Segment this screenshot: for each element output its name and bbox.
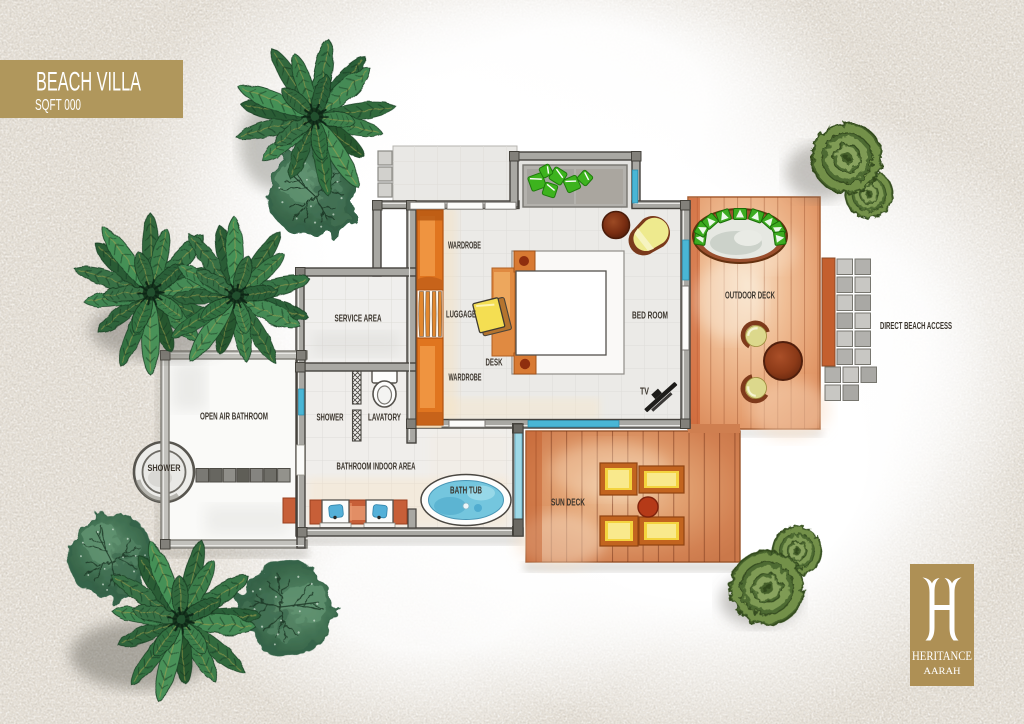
svg-text:OUTDOOR DECK: OUTDOOR DECK [725,290,775,302]
svg-text:SQFT 000: SQFT 000 [35,97,81,114]
svg-text:BED ROOM: BED ROOM [632,310,668,322]
svg-text:SUN DECK: SUN DECK [551,497,585,509]
svg-text:BATHROOM INDOOR AREA: BATHROOM INDOOR AREA [337,461,416,473]
svg-text:WARDROBE: WARDROBE [449,372,482,384]
svg-text:LUGGAGE: LUGGAGE [446,309,476,321]
svg-text:TV: TV [640,386,649,398]
svg-text:HERITANCE: HERITANCE [912,649,972,663]
svg-text:BEACH VILLA: BEACH VILLA [36,67,141,97]
svg-text:SERVICE AREA: SERVICE AREA [335,313,382,325]
svg-text:OPEN AIR BATHROOM: OPEN AIR BATHROOM [200,411,268,423]
svg-text:SHOWER: SHOWER [148,463,181,474]
svg-text:SHOWER: SHOWER [317,412,344,424]
svg-text:WARDROBE: WARDROBE [448,240,481,252]
svg-text:DIRECT BEACH ACCESS: DIRECT BEACH ACCESS [880,320,952,332]
svg-text:AARAH: AARAH [924,667,961,677]
svg-text:BATH TUB: BATH TUB [450,486,482,497]
svg-text:DESK: DESK [486,357,503,369]
svg-text:LAVATORY: LAVATORY [368,412,401,424]
